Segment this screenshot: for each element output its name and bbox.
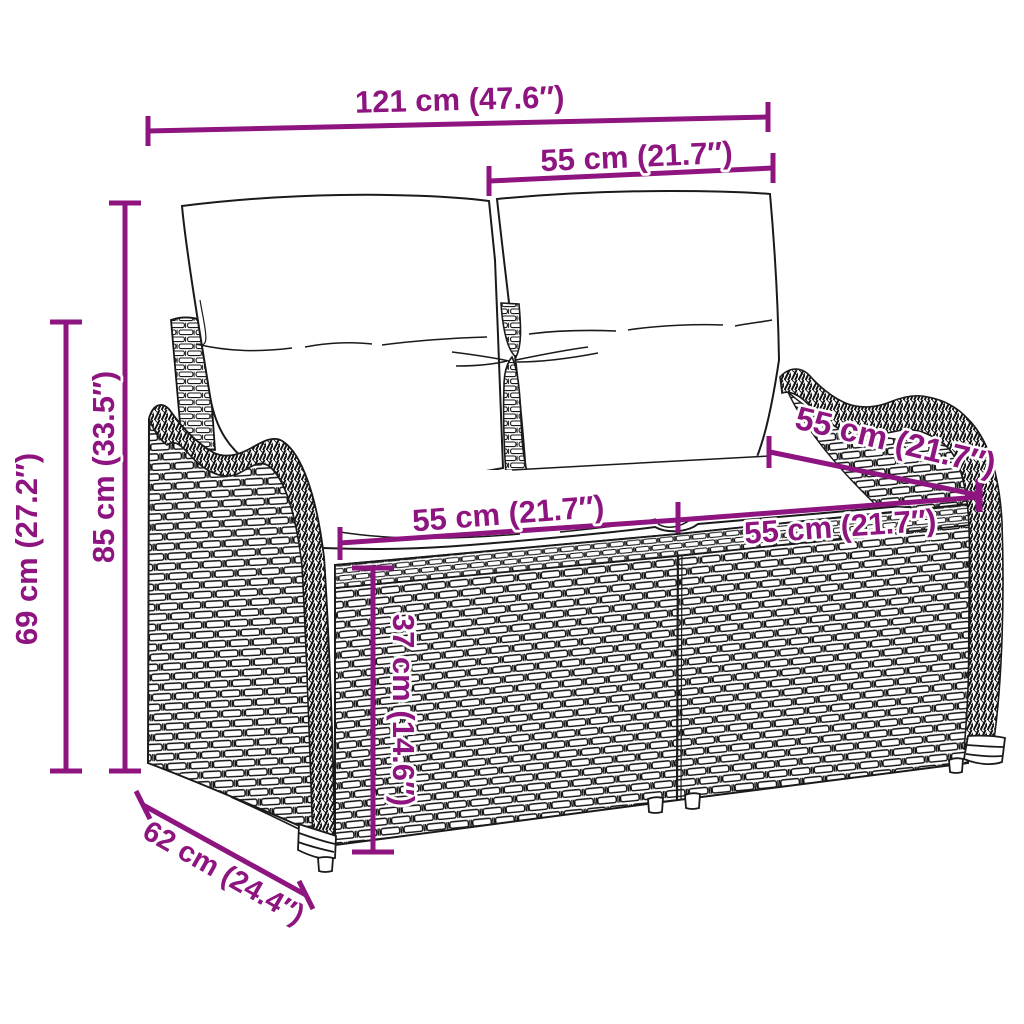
svg-text:85 cm (33.5″): 85 cm (33.5″) [86, 371, 121, 563]
svg-text:121 cm (47.6″): 121 cm (47.6″) [355, 79, 565, 119]
svg-text:37 cm (14.6″): 37 cm (14.6″) [386, 614, 421, 806]
svg-text:69 cm (27.2″): 69 cm (27.2″) [9, 453, 44, 645]
